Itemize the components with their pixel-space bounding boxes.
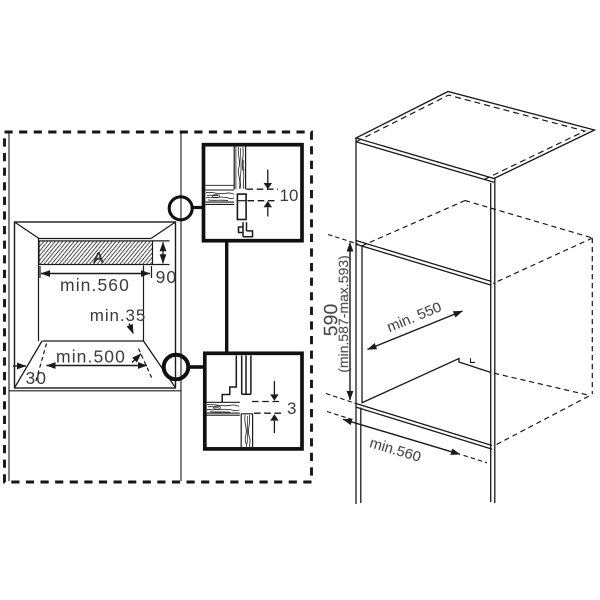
svg-text:min.35: min.35 (90, 306, 146, 325)
svg-text:A: A (93, 250, 104, 267)
svg-text:10: 10 (280, 186, 299, 205)
svg-text:min.500: min.500 (56, 347, 126, 367)
svg-text:min.560: min.560 (60, 275, 130, 295)
svg-text:(min.587-max.593): (min.587-max.593) (335, 255, 351, 373)
svg-text:90: 90 (156, 267, 178, 287)
svg-text:30: 30 (25, 368, 47, 388)
svg-text:3: 3 (287, 399, 296, 418)
